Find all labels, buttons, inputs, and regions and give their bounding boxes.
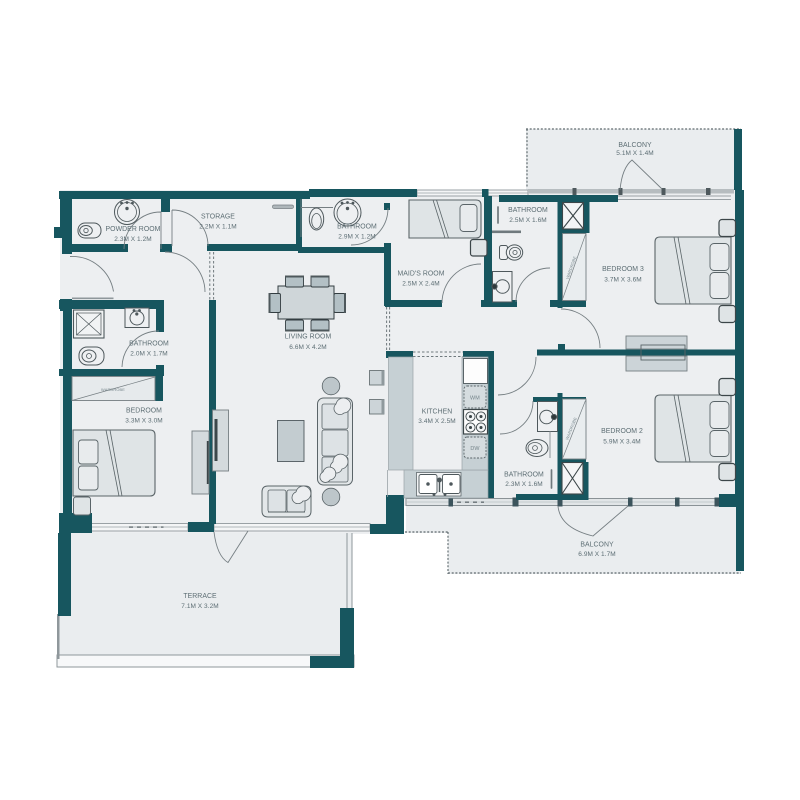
svg-text:BALCONY: BALCONY: [580, 542, 614, 549]
svg-text:5.9M X 3.4M: 5.9M X 3.4M: [603, 439, 640, 446]
svg-text:6.6M X 4.2M: 6.6M X 4.2M: [289, 344, 326, 351]
svg-text:STORAGE: STORAGE: [201, 214, 235, 221]
svg-text:BATHROOM: BATHROOM: [129, 341, 169, 348]
svg-text:POWDER ROOM: POWDER ROOM: [106, 226, 161, 233]
svg-text:2.0M X 1.7M: 2.0M X 1.7M: [130, 351, 167, 358]
svg-text:LIVING ROOM: LIVING ROOM: [285, 334, 332, 341]
svg-text:BEDROOM: BEDROOM: [126, 408, 162, 415]
svg-text:WARDROBE: WARDROBE: [101, 387, 125, 392]
svg-text:TERRACE: TERRACE: [183, 593, 217, 600]
svg-text:DW: DW: [470, 446, 480, 452]
svg-text:2.5M X 2.4M: 2.5M X 2.4M: [402, 281, 439, 288]
svg-text:2.3M X 1.6M: 2.3M X 1.6M: [505, 481, 542, 488]
svg-text:BATHROOM: BATHROOM: [508, 207, 548, 214]
svg-text:MAID'S ROOM: MAID'S ROOM: [397, 271, 444, 278]
svg-text:BEDROOM 2: BEDROOM 2: [601, 428, 643, 435]
svg-text:BALCONY: BALCONY: [618, 142, 652, 149]
svg-text:6.9M X 1.7M: 6.9M X 1.7M: [578, 551, 615, 558]
svg-text:BEDROOM 3: BEDROOM 3: [602, 266, 644, 273]
svg-text:3.4M X 2.5M: 3.4M X 2.5M: [418, 418, 455, 425]
svg-text:3.3M X 3.0M: 3.3M X 3.0M: [125, 418, 162, 425]
svg-text:5.1M X 1.4M: 5.1M X 1.4M: [616, 150, 653, 157]
svg-text:WM: WM: [470, 396, 480, 402]
svg-text:BATHROOM: BATHROOM: [337, 224, 377, 231]
svg-text:2.5M X 1.6M: 2.5M X 1.6M: [509, 217, 546, 224]
svg-text:7.1M X 3.2M: 7.1M X 3.2M: [181, 603, 218, 610]
svg-text:KITCHEN: KITCHEN: [422, 409, 453, 416]
svg-text:2.9M X 1.2M: 2.9M X 1.2M: [338, 234, 375, 241]
svg-text:2.2M X 1.1M: 2.2M X 1.1M: [199, 224, 236, 231]
svg-text:BATHROOM: BATHROOM: [504, 472, 544, 479]
svg-text:3.7M X 3.6M: 3.7M X 3.6M: [604, 277, 641, 284]
svg-text:2.3M X 1.2M: 2.3M X 1.2M: [114, 236, 151, 243]
